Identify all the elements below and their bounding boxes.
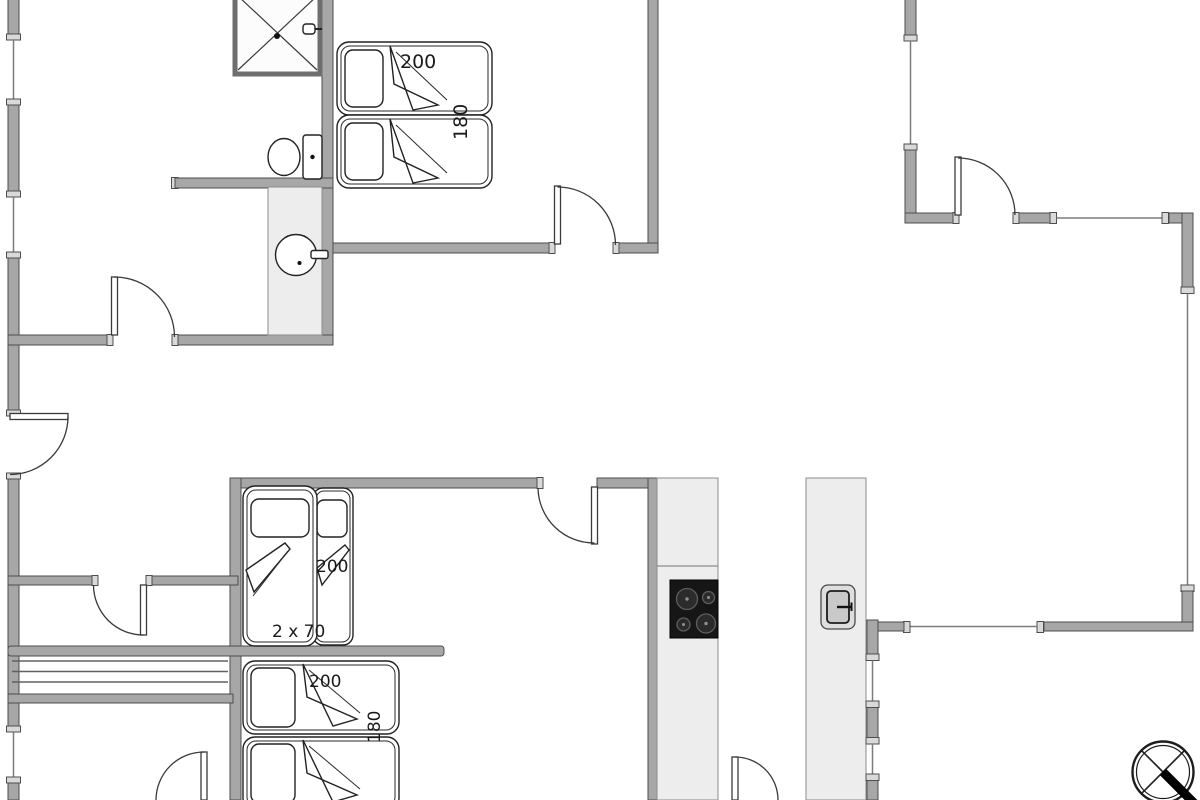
bathroom-door [112,277,175,337]
bed-middle-singles: 200 2 x 70 [243,486,353,646]
right-wing-door [955,157,1015,215]
wall-segment [8,479,19,726]
door-panel [10,414,68,420]
window-cap [866,774,879,781]
wall-segment [905,0,916,35]
wall-segment [178,335,333,345]
door-jamb [537,478,543,489]
burner-dot [685,597,688,600]
door-jamb [107,335,113,346]
north-arrow-compass-icon [1133,742,1199,800]
window-cap [1181,287,1194,294]
door-swing-arc [156,752,204,800]
window-cap [7,252,21,258]
dimension-label: 200 [309,672,341,692]
burner-dot [707,596,710,599]
wall-segment [8,258,19,410]
wall-segment [8,105,19,191]
door-panel [112,277,118,335]
door-panel [955,157,961,215]
wall-segment [1044,622,1193,631]
window-cap [866,701,879,708]
hallway-door [94,585,147,635]
island-counter [806,478,866,800]
window-cap [7,777,21,783]
window-cap [904,35,917,41]
toilet [268,135,322,179]
entrance-door [10,414,68,475]
window-cap [904,144,917,150]
dimension-label: 180 [365,711,385,743]
basin-drain [298,261,302,265]
shower-handle-icon [303,24,315,34]
wall-segment [8,0,19,34]
window-cap [1050,213,1057,224]
window-cap [7,34,21,40]
wall-segment [322,0,333,343]
kitchen [648,478,718,800]
floor-plan: 200 180 200 2 x [0,0,1200,800]
top-bedroom-door [555,186,616,245]
door-panel [732,757,738,800]
dimension-label: 180 [450,104,472,140]
door-jamb [92,576,98,586]
door-panel [592,487,598,544]
window-cap [1162,213,1169,224]
wall-segment [619,243,658,253]
right-wing-walls [866,0,1194,800]
bed-double-top: 200 180 [337,42,492,188]
shower [235,0,322,74]
wall-segment [1182,213,1193,287]
wall-segment [867,708,878,738]
toilet-button [310,155,314,159]
burner-dot [704,622,707,625]
wall-segment [152,576,238,585]
kitchen-counter [657,478,718,800]
shower-drain [274,33,280,39]
compass-cross-line [1141,750,1163,772]
bed-bottom-singles: 200 180 [243,661,399,800]
wall-segment [8,335,107,345]
door-swing-arc [558,187,616,245]
window-cap [866,738,879,745]
floor-plan-drawing: 200 180 200 2 x [0,0,1200,800]
window-cap [866,654,879,661]
door-swing-arc [958,158,1015,215]
bottom-left-door [156,752,207,800]
wall-segment [8,694,233,703]
toilet-bowl [268,139,300,176]
kitchen-island [806,478,866,800]
door-swing-arc [10,417,68,475]
door-jamb [1013,213,1019,224]
dimension-label: 200 [316,557,348,577]
bottom-center-door [732,757,778,800]
pillow [251,499,309,537]
exterior-wall-left [7,0,21,800]
wall-segment [1019,213,1050,223]
living-room-door [538,487,598,544]
window-cap [1037,622,1044,633]
washbasin-cabinet [268,187,328,335]
basin-tap-icon [311,251,328,259]
wall-segment [905,213,953,223]
wall-segment [648,0,658,252]
wall-segment [867,620,878,654]
wall-segment [230,478,241,800]
wall-segment [867,781,878,800]
wall-segment [905,150,916,222]
dimension-label: 2 x 70 [272,622,325,642]
door-panel [141,585,147,635]
stairs [12,661,228,682]
door-swing-arc [735,757,778,800]
dimension-label: 200 [400,51,436,73]
door-swing-arc [115,277,175,337]
door-panel [201,752,207,800]
pillow [345,123,383,180]
pillow [251,744,295,800]
wall-segment [333,243,549,253]
door-swing-arc [538,488,595,543]
wall-segment [8,576,92,585]
door-swing-arc [94,585,144,635]
wall-segment [648,478,657,800]
window-cap [7,726,21,732]
wall-segment [8,783,19,800]
wall-segment [8,646,444,656]
pillow [251,668,295,727]
door-jamb [146,576,152,586]
window-cap [7,99,21,105]
window-cap [7,191,21,197]
door-panel [555,186,561,244]
pillow [345,50,383,107]
pillow [317,500,347,537]
burner-dot [682,623,685,626]
